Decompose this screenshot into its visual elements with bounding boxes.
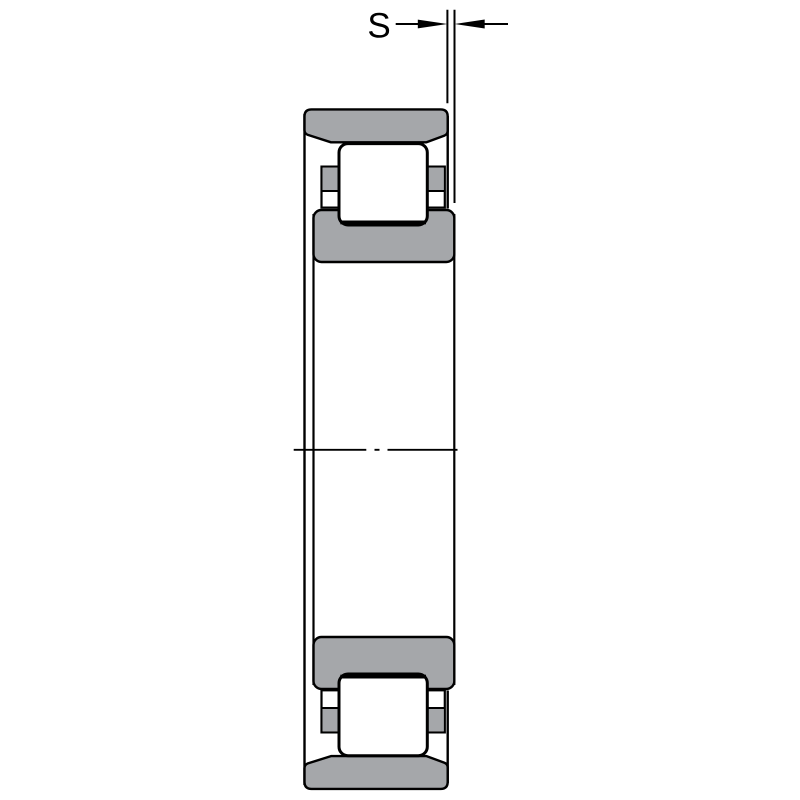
svg-text:S: S (367, 7, 390, 46)
